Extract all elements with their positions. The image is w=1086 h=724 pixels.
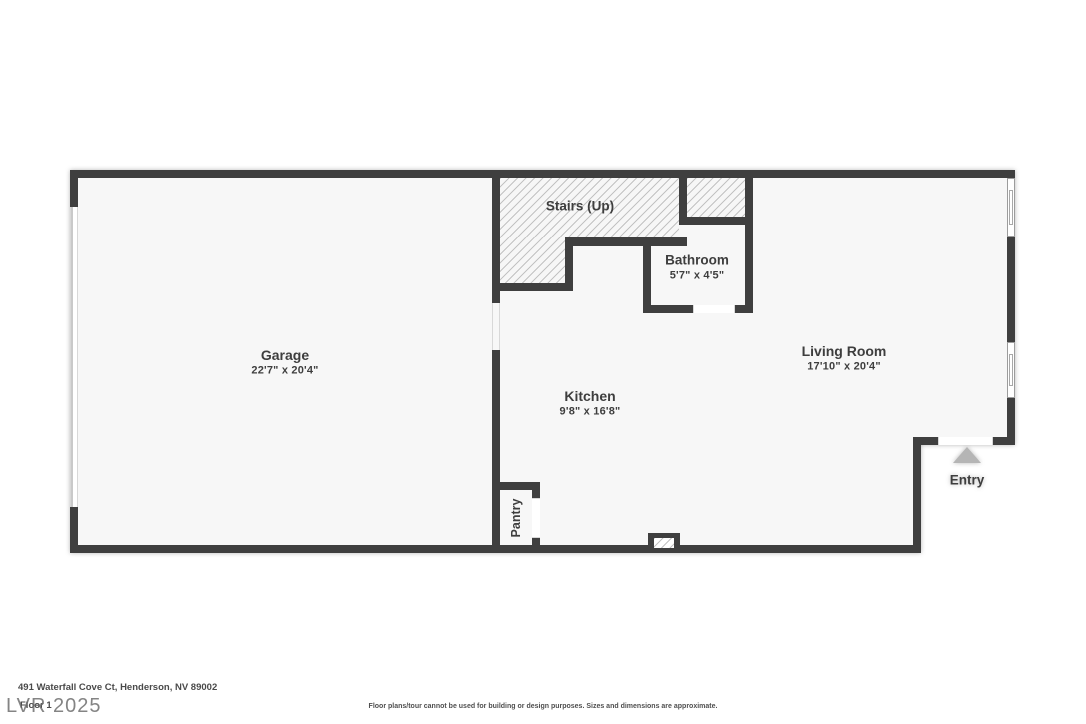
fireplace-niche-hatch xyxy=(654,538,674,548)
bathroom-label: Bathroom xyxy=(665,253,729,267)
wall-bathroom-right xyxy=(745,170,753,313)
disclaimer-text: Floor plans/tour cannot be used for buil… xyxy=(369,703,718,710)
entry-direction-icon xyxy=(953,447,981,463)
pantry-label: Pantry xyxy=(510,499,523,538)
watermark-logo: LVR 2025 xyxy=(6,695,101,718)
window-pane xyxy=(1009,354,1013,386)
wall-entry-side xyxy=(913,437,921,553)
floor-plan-page: Garage 22'7" x 20'4" Stairs (Up) Bathroo… xyxy=(0,0,1086,724)
floor-plan: Garage 22'7" x 20'4" Stairs (Up) Bathroo… xyxy=(0,0,1086,724)
stairs-landing-hatch xyxy=(687,178,745,218)
garage-kitchen-door-opening xyxy=(492,303,500,350)
bathroom-dimensions: 5'7" x 4'5" xyxy=(670,271,725,282)
garage-label: Garage xyxy=(261,348,309,362)
wall-landing-bottom xyxy=(679,217,753,225)
wall-stairs-lower-bottom xyxy=(492,283,573,291)
wall-stairs-bottom xyxy=(565,237,687,246)
wall-garage-kitchen xyxy=(492,170,500,553)
stairs-hatch-lower xyxy=(500,237,565,283)
garage-dimensions: 22'7" x 20'4" xyxy=(251,366,318,377)
entry-door-opening xyxy=(938,437,993,445)
stairs-label: Stairs (Up) xyxy=(546,199,614,213)
window-pane xyxy=(1009,190,1013,225)
wall-pantry-top xyxy=(492,482,540,490)
entry-label: Entry xyxy=(950,473,985,487)
bathroom-door-opening xyxy=(693,305,735,313)
kitchen-dimensions: 9'8" x 16'8" xyxy=(560,407,621,418)
kitchen-label: Kitchen xyxy=(564,389,615,403)
living-room-window-lower xyxy=(1007,342,1015,398)
wall-bathroom-left xyxy=(643,246,651,313)
wall-left-upper xyxy=(70,170,78,207)
garage-door-panel xyxy=(71,207,73,507)
living-room-label: Living Room xyxy=(802,344,887,358)
living-room-window-upper xyxy=(1007,178,1015,237)
wall-top xyxy=(70,170,1015,178)
living-room-dimensions: 17'10" x 20'4" xyxy=(807,362,881,373)
pantry-door-opening xyxy=(532,498,540,538)
property-address: 491 Waterfall Cove Ct, Henderson, NV 890… xyxy=(18,682,217,693)
